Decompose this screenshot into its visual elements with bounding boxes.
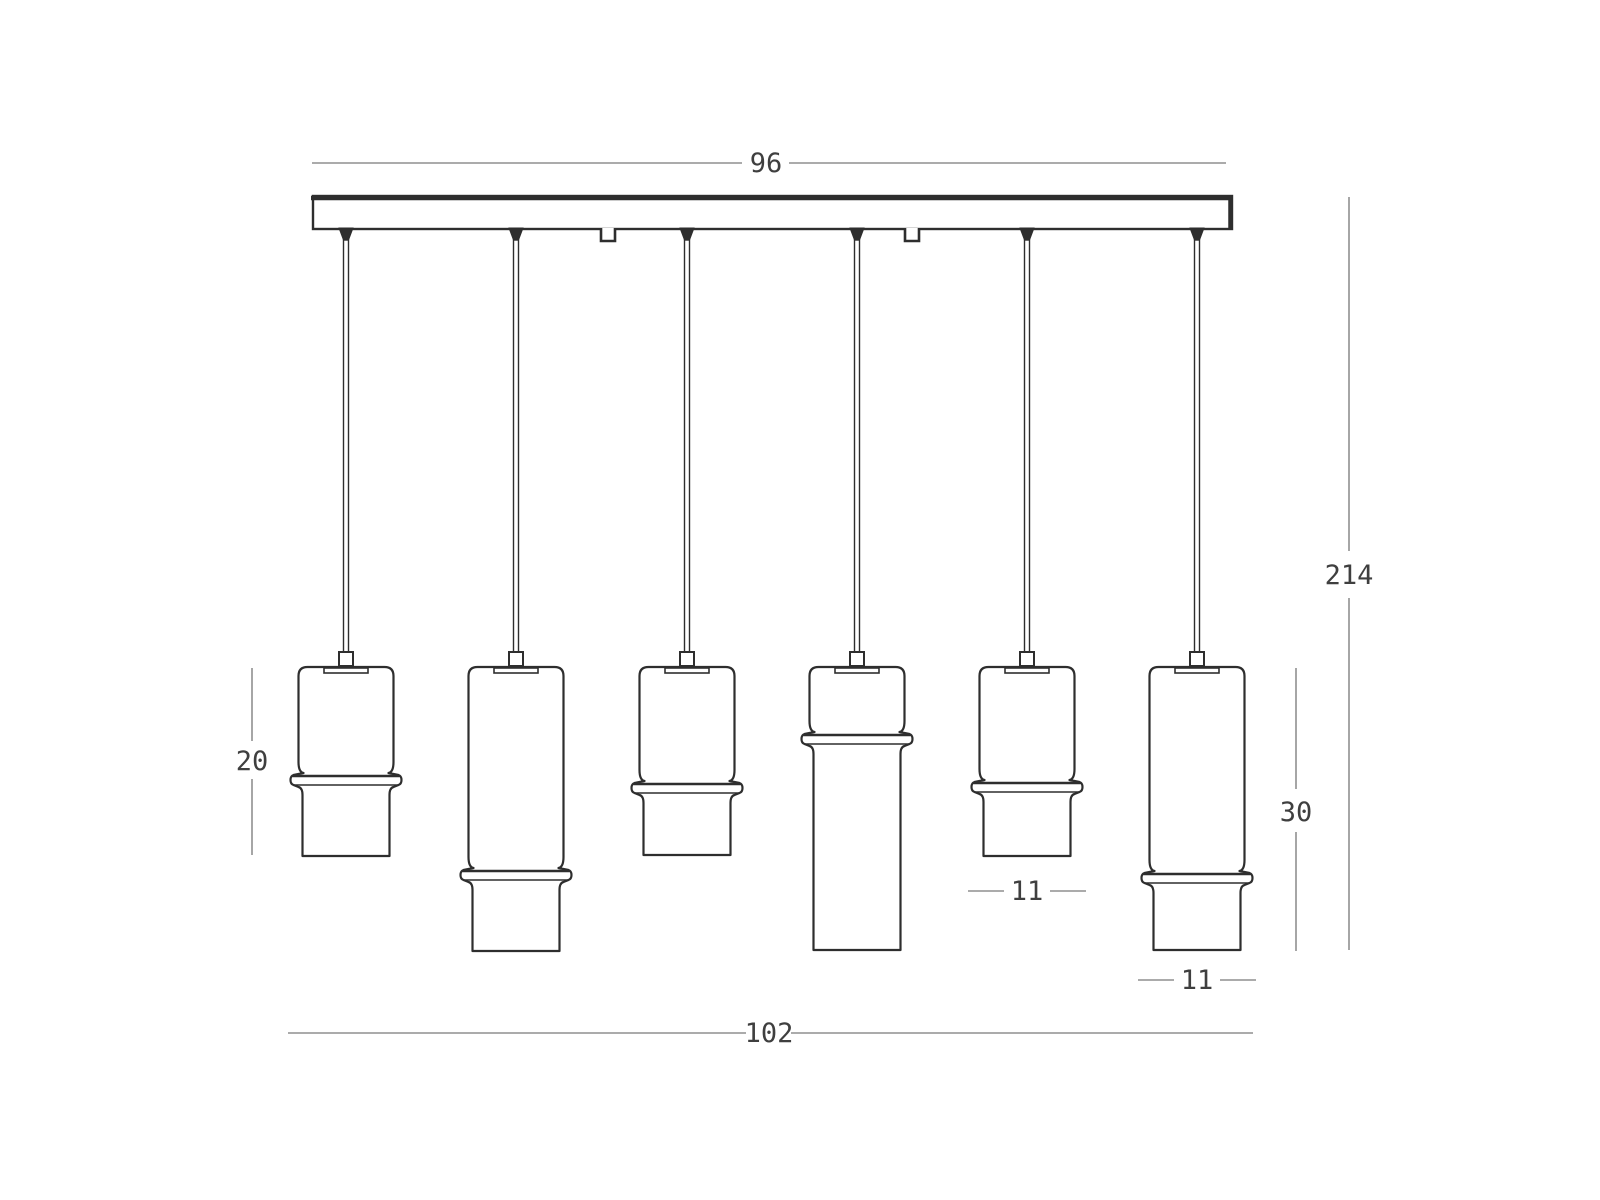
socket-plate (494, 668, 538, 673)
cord-fitting (850, 228, 864, 240)
suspension-cable (344, 240, 349, 652)
suspension-cable (1025, 240, 1030, 652)
glass-shade (802, 667, 913, 950)
dimension-label-overall-drop: 214 (1325, 560, 1374, 591)
ceiling-canopy-bar (313, 196, 1232, 229)
pendant-1 (291, 228, 402, 856)
pendant-light-dimension-diagram: 96 214 20 30 11 11 (0, 0, 1600, 1200)
socket (680, 652, 694, 666)
hook-loop-1 (601, 228, 615, 241)
pendant-2 (461, 228, 572, 951)
suspension-cable (855, 240, 860, 652)
socket-plate (1175, 668, 1219, 673)
cord-fitting (1020, 228, 1034, 240)
socket (850, 652, 864, 666)
cord-fitting (680, 228, 694, 240)
hook-loop-2 (905, 228, 919, 241)
cord-fitting (509, 228, 523, 240)
dimension-label-overall-width: 102 (745, 1018, 794, 1049)
pendant-3 (632, 228, 743, 855)
dimension-short-shade-height: 20 (236, 668, 269, 855)
dimension-overall-drop: 214 (1325, 197, 1374, 950)
glass-shade (1142, 667, 1253, 950)
suspension-cable (514, 240, 519, 652)
dimension-label-shade-diameter-a: 11 (1011, 876, 1044, 907)
pendant-5 (972, 228, 1083, 856)
glass-shade (291, 667, 402, 856)
glass-shade (972, 667, 1083, 856)
dimension-shade-diameter-b: 11 (1138, 965, 1256, 996)
suspension-cable (1195, 240, 1200, 652)
dimension-shade-diameter-a: 11 (968, 876, 1086, 907)
glass-shade (461, 667, 572, 951)
socket-plate (1005, 668, 1049, 673)
suspension-cable (685, 240, 690, 652)
socket-plate (324, 668, 368, 673)
dimension-label-long-shade-height: 30 (1280, 797, 1313, 828)
socket (509, 652, 523, 666)
socket (339, 652, 353, 666)
diagram-canvas: 96 214 20 30 11 11 (0, 0, 1600, 1200)
dimension-label-shade-diameter-b: 11 (1181, 965, 1214, 996)
socket (1190, 652, 1204, 666)
dimension-canopy-width: 96 (312, 148, 1226, 179)
dimension-label-short-shade-height: 20 (236, 746, 269, 777)
cord-fitting (339, 228, 353, 240)
glass-shade (632, 667, 743, 855)
fixture-drawing (291, 196, 1253, 951)
pendant-4 (802, 228, 913, 950)
pendants (291, 228, 1253, 951)
dimension-label-canopy-width: 96 (750, 148, 783, 179)
cord-fitting (1190, 228, 1204, 240)
socket (1020, 652, 1034, 666)
pendant-6 (1142, 228, 1253, 950)
socket-plate (835, 668, 879, 673)
socket-plate (665, 668, 709, 673)
dimension-long-shade-height: 30 (1280, 668, 1313, 951)
dimension-overall-width: 102 (288, 1018, 1253, 1049)
